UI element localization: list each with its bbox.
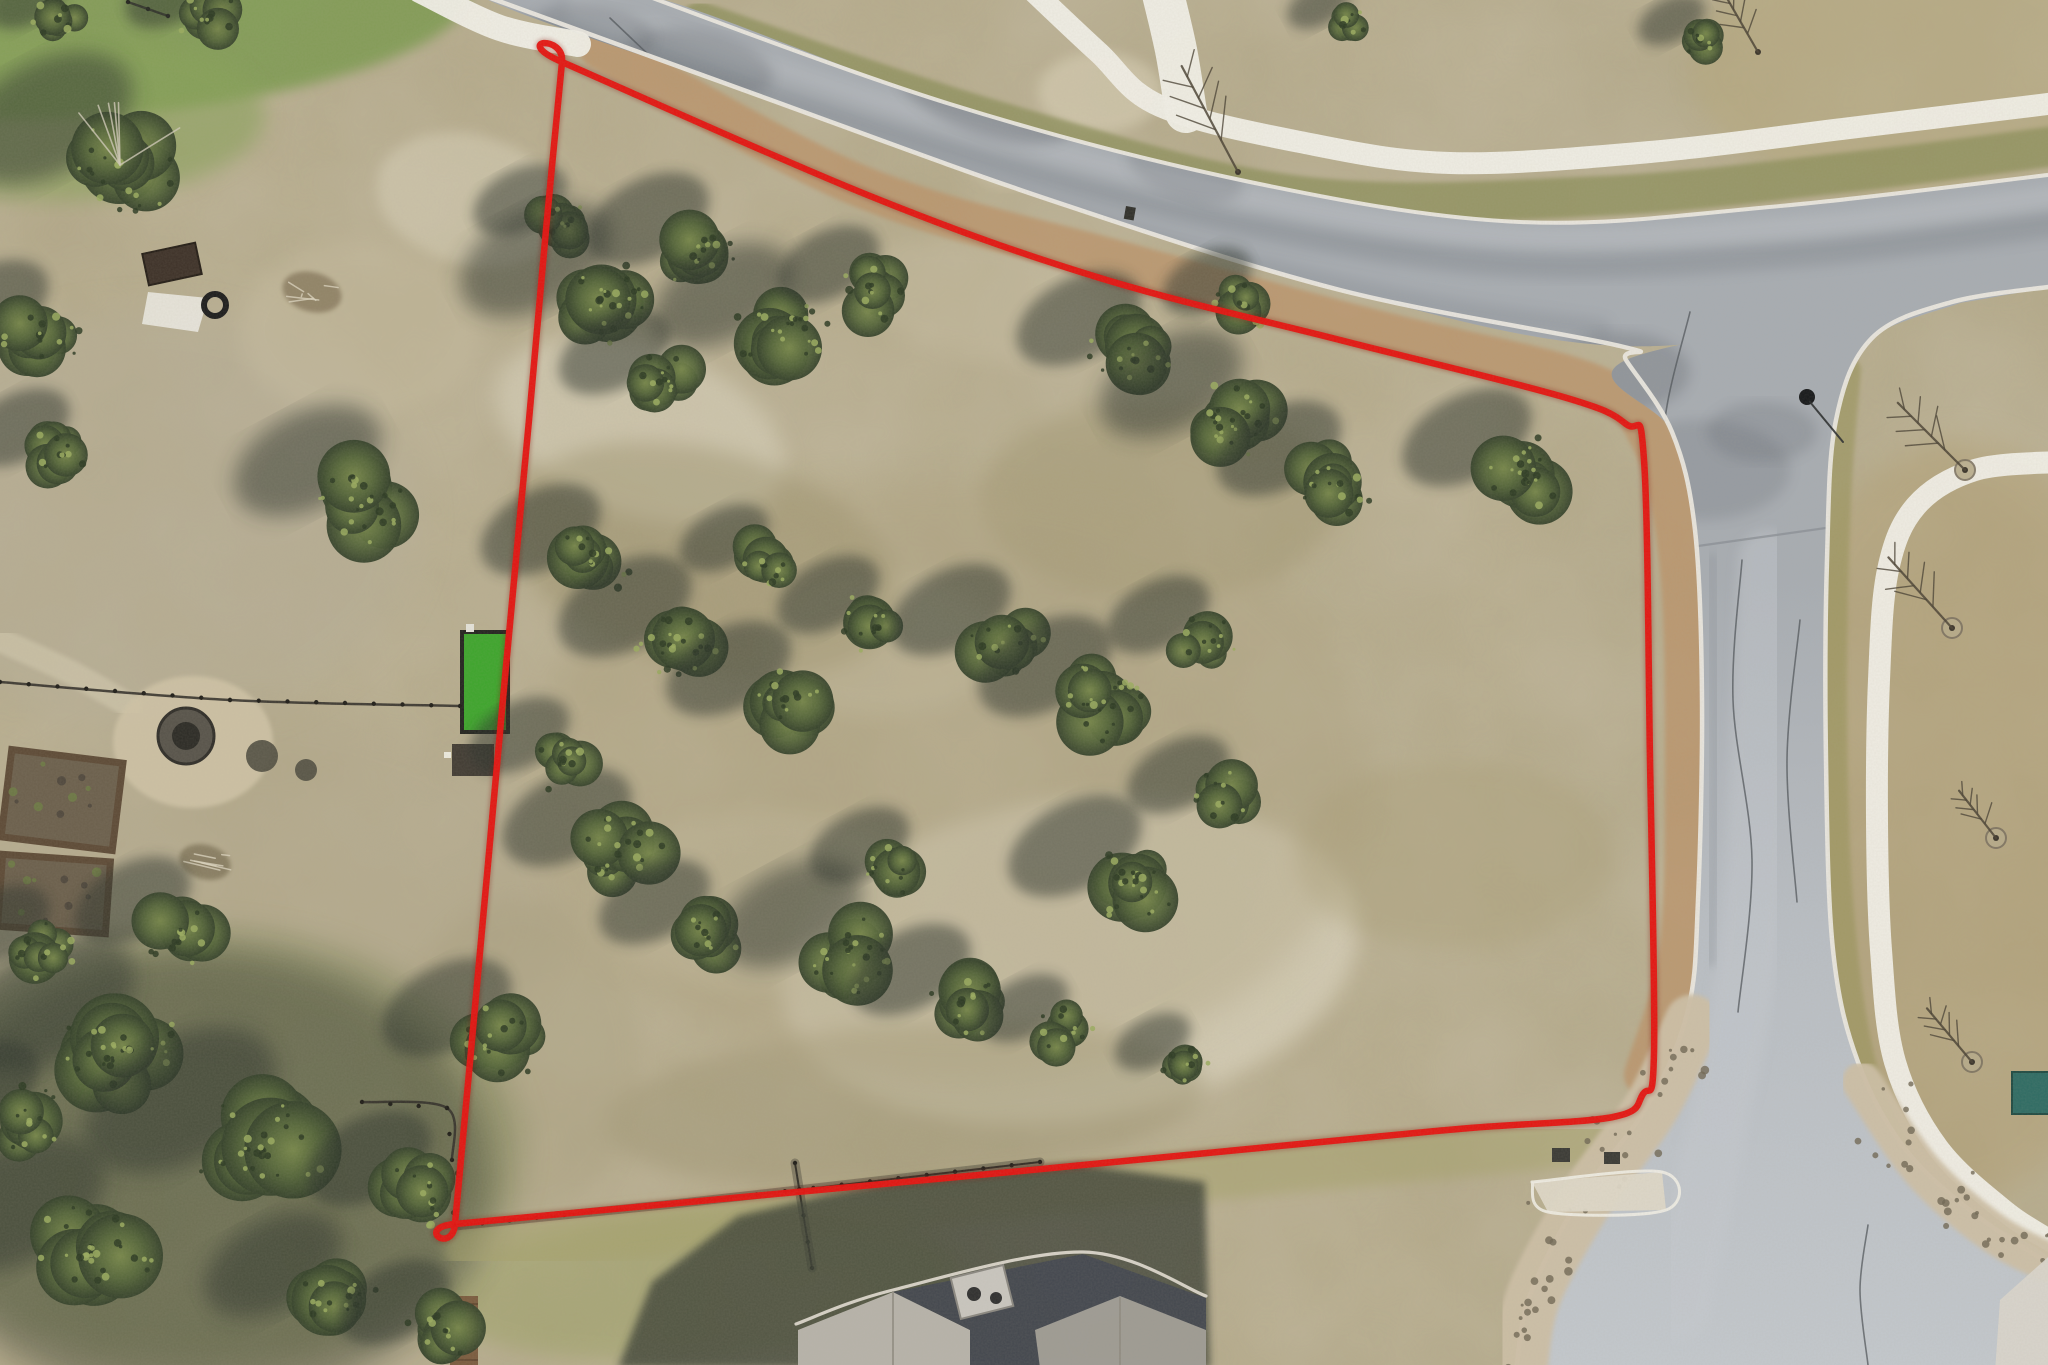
photo-grain-overlay — [0, 0, 2048, 1365]
aerial-scene — [0, 0, 2048, 1365]
aerial-lot-photo — [0, 0, 2048, 1365]
